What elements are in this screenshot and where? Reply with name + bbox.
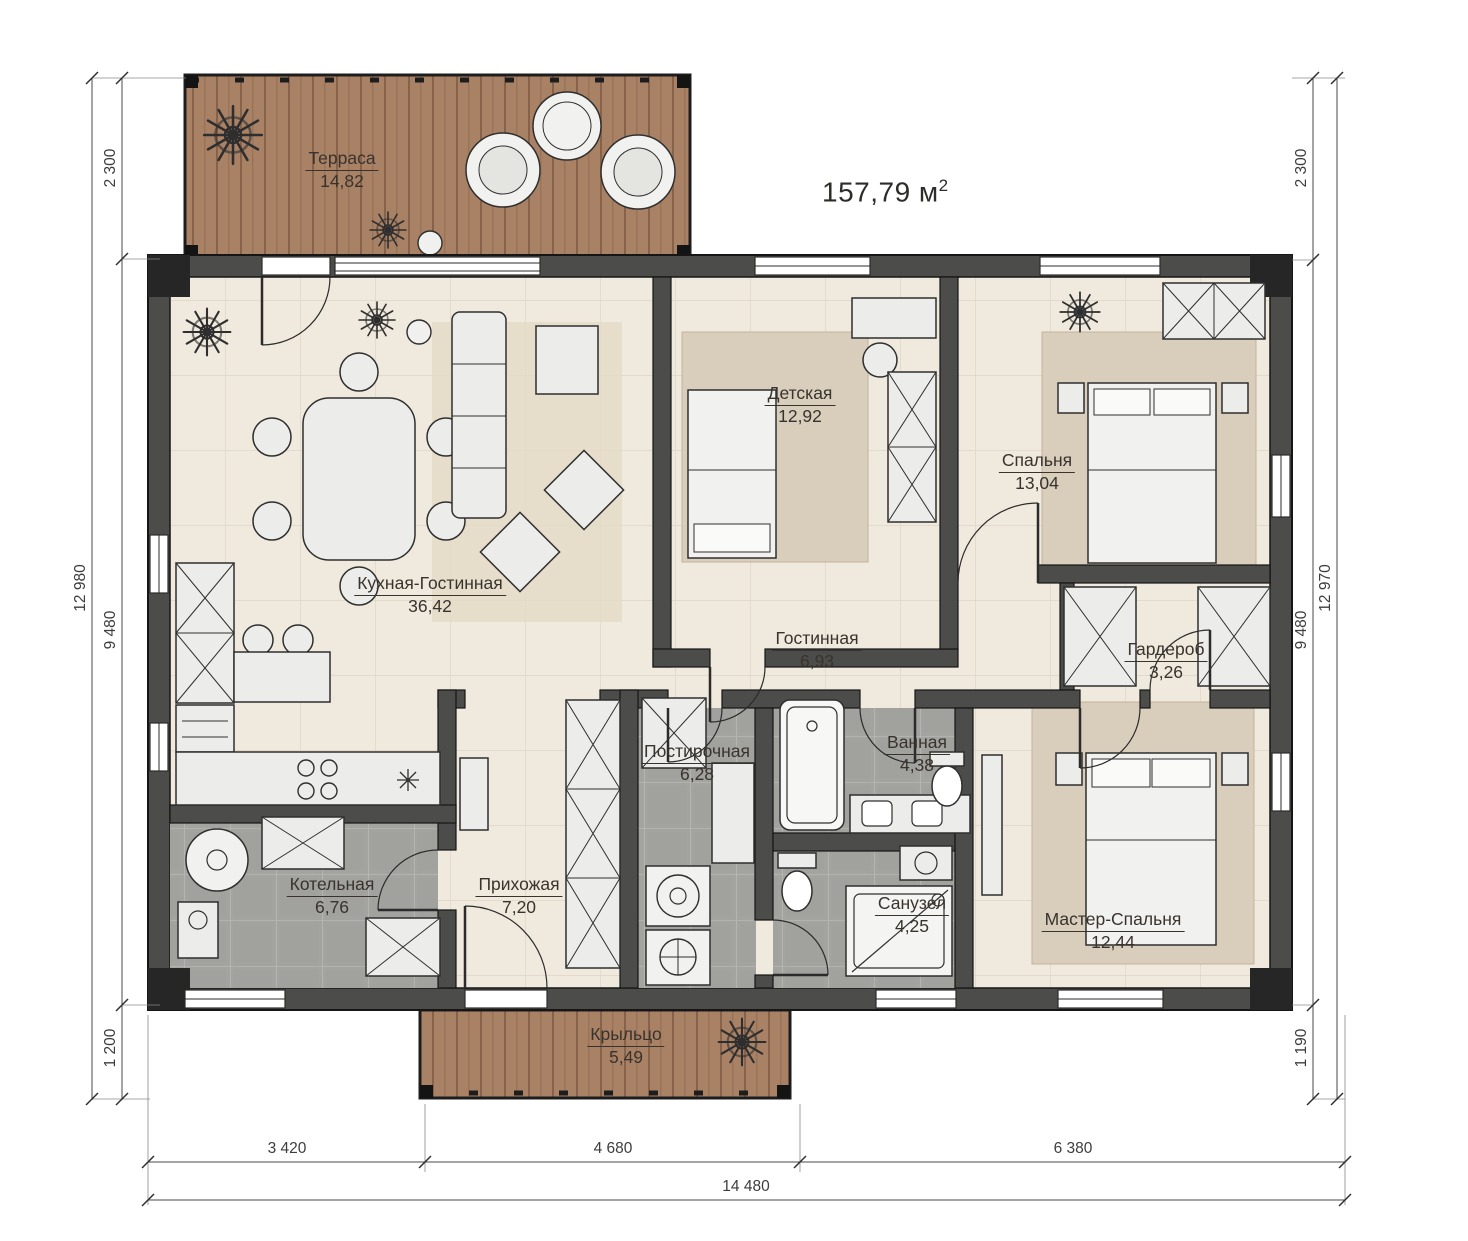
sink [862, 801, 892, 826]
stool [283, 625, 313, 655]
terrace-table [533, 92, 601, 160]
plant-icon [407, 320, 431, 344]
nightstand [1056, 753, 1082, 785]
chair [340, 353, 378, 391]
kitchen-peninsula [234, 652, 330, 702]
terrace-deck [185, 75, 690, 258]
dim-bottom-left: 3 420 [268, 1140, 307, 1158]
total-area-label: 157,79 м2 [822, 176, 949, 208]
pillow [1092, 759, 1150, 787]
room-label-living: Гостинная 6,93 [772, 628, 861, 671]
dim-bottom-right: 6 380 [1054, 1140, 1093, 1158]
room-label-master: Мастер-Спальня 12,44 [1042, 909, 1185, 952]
console [460, 758, 488, 830]
room-label-laundry: Постирочная 6,28 [641, 741, 753, 784]
sink-icon [397, 769, 419, 791]
pillow [1152, 759, 1210, 787]
dim-left-top: 2 300 [102, 149, 120, 188]
room-label-terrace: Терраса 14,82 [305, 148, 378, 191]
pillow [1154, 389, 1210, 415]
desk [852, 298, 936, 338]
dim-right-top: 2 300 [1293, 149, 1311, 188]
total-area-value: 157,79 [822, 176, 911, 207]
sink [900, 846, 952, 880]
bathtub [780, 700, 844, 830]
mirror-cabinet [982, 755, 1002, 895]
room-label-bedroom: Спальня 13,04 [999, 450, 1075, 493]
floor-plan-drawing [0, 0, 1468, 1241]
dim-right-bottom: 1 190 [1293, 1029, 1311, 1068]
plant-icon [418, 231, 442, 255]
nightstand [1222, 383, 1248, 413]
total-area-sup: 2 [939, 176, 949, 195]
dim-bottom-overall: 14 480 [722, 1178, 769, 1196]
chair [253, 502, 291, 540]
stool [243, 625, 273, 655]
window [335, 257, 540, 275]
room-label-hallway: Прихожая 7,20 [475, 874, 562, 917]
total-area-unit: м [919, 176, 939, 207]
terrace-chair-right [601, 135, 675, 209]
room-label-children: Детская 12,92 [765, 383, 836, 426]
chair [253, 418, 291, 456]
pillow [694, 524, 770, 552]
nightstand [1222, 753, 1248, 785]
toilet [782, 871, 812, 911]
boiler-tank [186, 829, 248, 891]
room-label-bath: Ванная 4,38 [884, 732, 950, 775]
room-label-wardrobe: Гардероб 3,26 [1125, 639, 1208, 682]
pillow [1094, 389, 1150, 415]
terrace-chair-left [466, 133, 540, 207]
sofa [452, 312, 506, 518]
coffee-table [536, 326, 598, 394]
room-label-porch: Крыльцо 5,49 [587, 1024, 664, 1067]
room-label-kitchen-living: Кухная-Гостинная 36,42 [354, 573, 506, 616]
dim-left-overall: 12 980 [72, 564, 90, 611]
nightstand [1058, 383, 1084, 413]
dim-right-middle: 9 480 [1293, 611, 1311, 650]
toilet-cistern [778, 853, 816, 868]
terrace-door-opening [262, 257, 330, 275]
floor-plan-canvas: 157,79 м2 Терраса 14,82 Кухная-Гостинная… [0, 0, 1468, 1241]
dim-bottom-center: 4 680 [594, 1140, 633, 1158]
sink [912, 801, 942, 826]
dim-left-middle: 9 480 [102, 611, 120, 650]
entrance-door-opening [465, 990, 547, 1008]
dim-right-overall: 12 970 [1317, 564, 1335, 611]
room-label-wc: Санузел 4,25 [875, 893, 949, 936]
dim-left-bottom: 1 200 [102, 1029, 120, 1068]
room-label-boiler: Котельная 6,76 [287, 874, 378, 917]
fridge [176, 705, 234, 752]
dining-table [303, 398, 415, 560]
